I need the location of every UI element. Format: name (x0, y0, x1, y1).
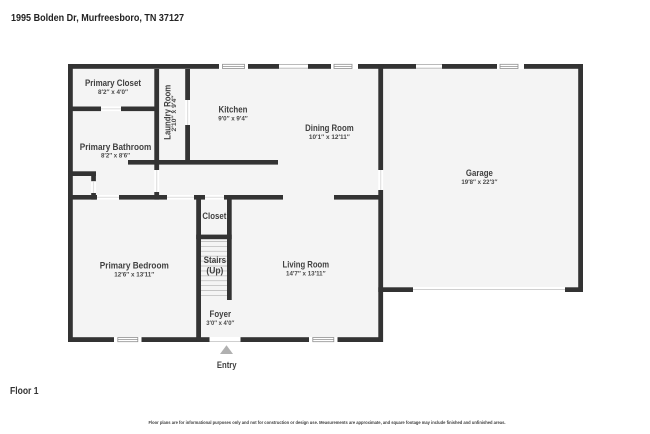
svg-text:3′0″ x 4′0″: 3′0″ x 4′0″ (206, 320, 235, 327)
svg-text:1995 Bolden Dr, Murfreesboro,: 1995 Bolden Dr, Murfreesboro, TN 37127 (11, 13, 184, 24)
svg-text:14′7″ x 13′11″: 14′7″ x 13′11″ (286, 270, 326, 277)
svg-text:Floor 1: Floor 1 (10, 386, 39, 397)
svg-text:8′2″ x 8′6″: 8′2″ x 8′6″ (101, 153, 131, 160)
svg-text:Entry: Entry (217, 360, 237, 371)
svg-text:Primary Bedroom: Primary Bedroom (100, 260, 169, 271)
svg-text:Floor plans are for informatio: Floor plans are for informational purpos… (149, 420, 506, 425)
svg-text:Primary Bathroom: Primary Bathroom (80, 142, 152, 153)
svg-text:Kitchen: Kitchen (219, 105, 248, 116)
svg-text:Garage: Garage (466, 168, 493, 179)
svg-text:Living Room: Living Room (283, 259, 330, 270)
svg-text:12′6″ x 13′11″: 12′6″ x 13′11″ (114, 271, 155, 278)
svg-text:Foyer: Foyer (210, 309, 232, 320)
svg-text:10′1″ x 12′11″: 10′1″ x 12′11″ (309, 134, 351, 141)
svg-text:Primary Closet: Primary Closet (85, 78, 142, 89)
svg-text:19′8″ x 22′3″: 19′8″ x 22′3″ (461, 179, 498, 186)
svg-text:2′10″ x 9′4″: 2′10″ x 9′4″ (171, 95, 178, 132)
svg-text:(Up): (Up) (206, 265, 223, 276)
svg-text:Closet: Closet (202, 211, 227, 222)
svg-text:Dining Room: Dining Room (305, 123, 354, 134)
svg-text:8′2″ x 4′0″: 8′2″ x 4′0″ (98, 89, 129, 96)
svg-text:9′0″ x 9′4″: 9′0″ x 9′4″ (218, 116, 248, 123)
